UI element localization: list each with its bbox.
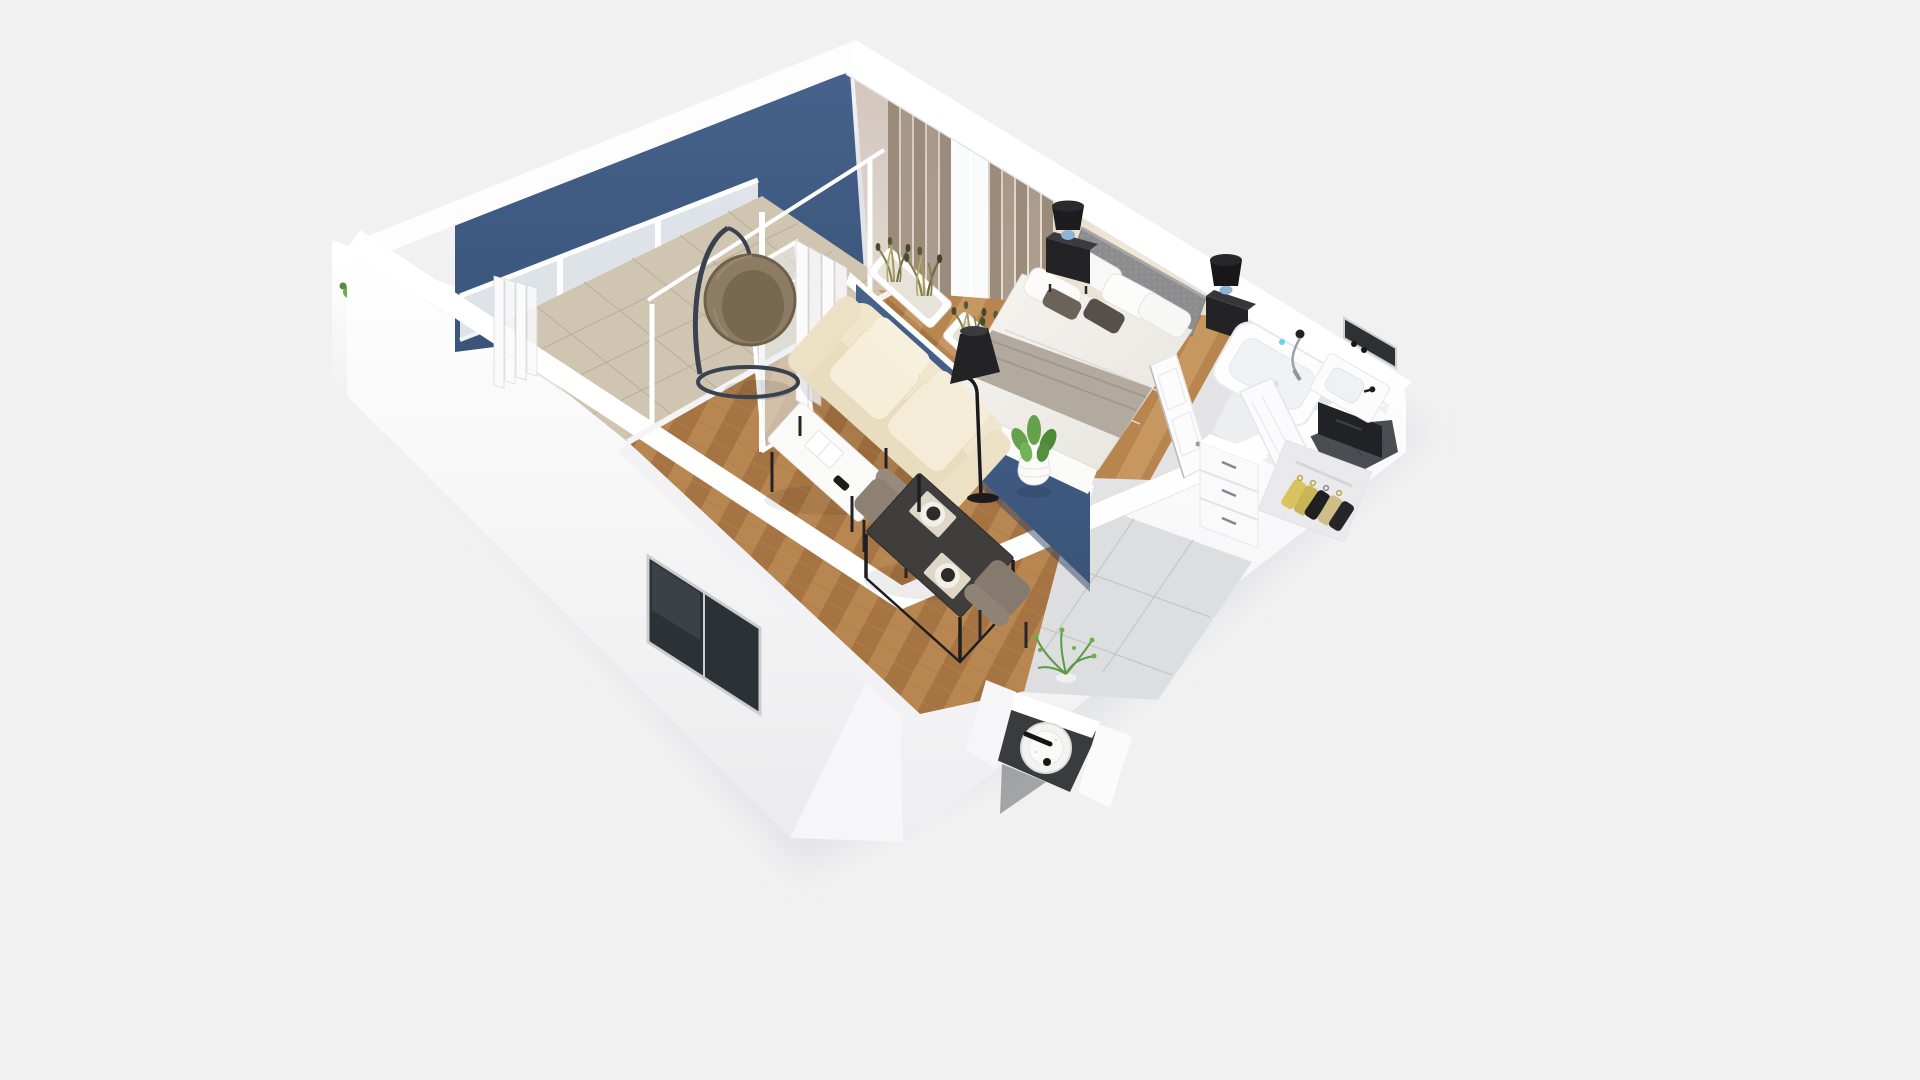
apartment-3d-floorplan: Isometric 3D cutaway floor plan of a one… bbox=[0, 0, 1920, 1080]
round-basin-fixture bbox=[1021, 723, 1071, 773]
floorplan-render-stage: Isometric 3D cutaway floor plan of a one… bbox=[0, 0, 1920, 1080]
